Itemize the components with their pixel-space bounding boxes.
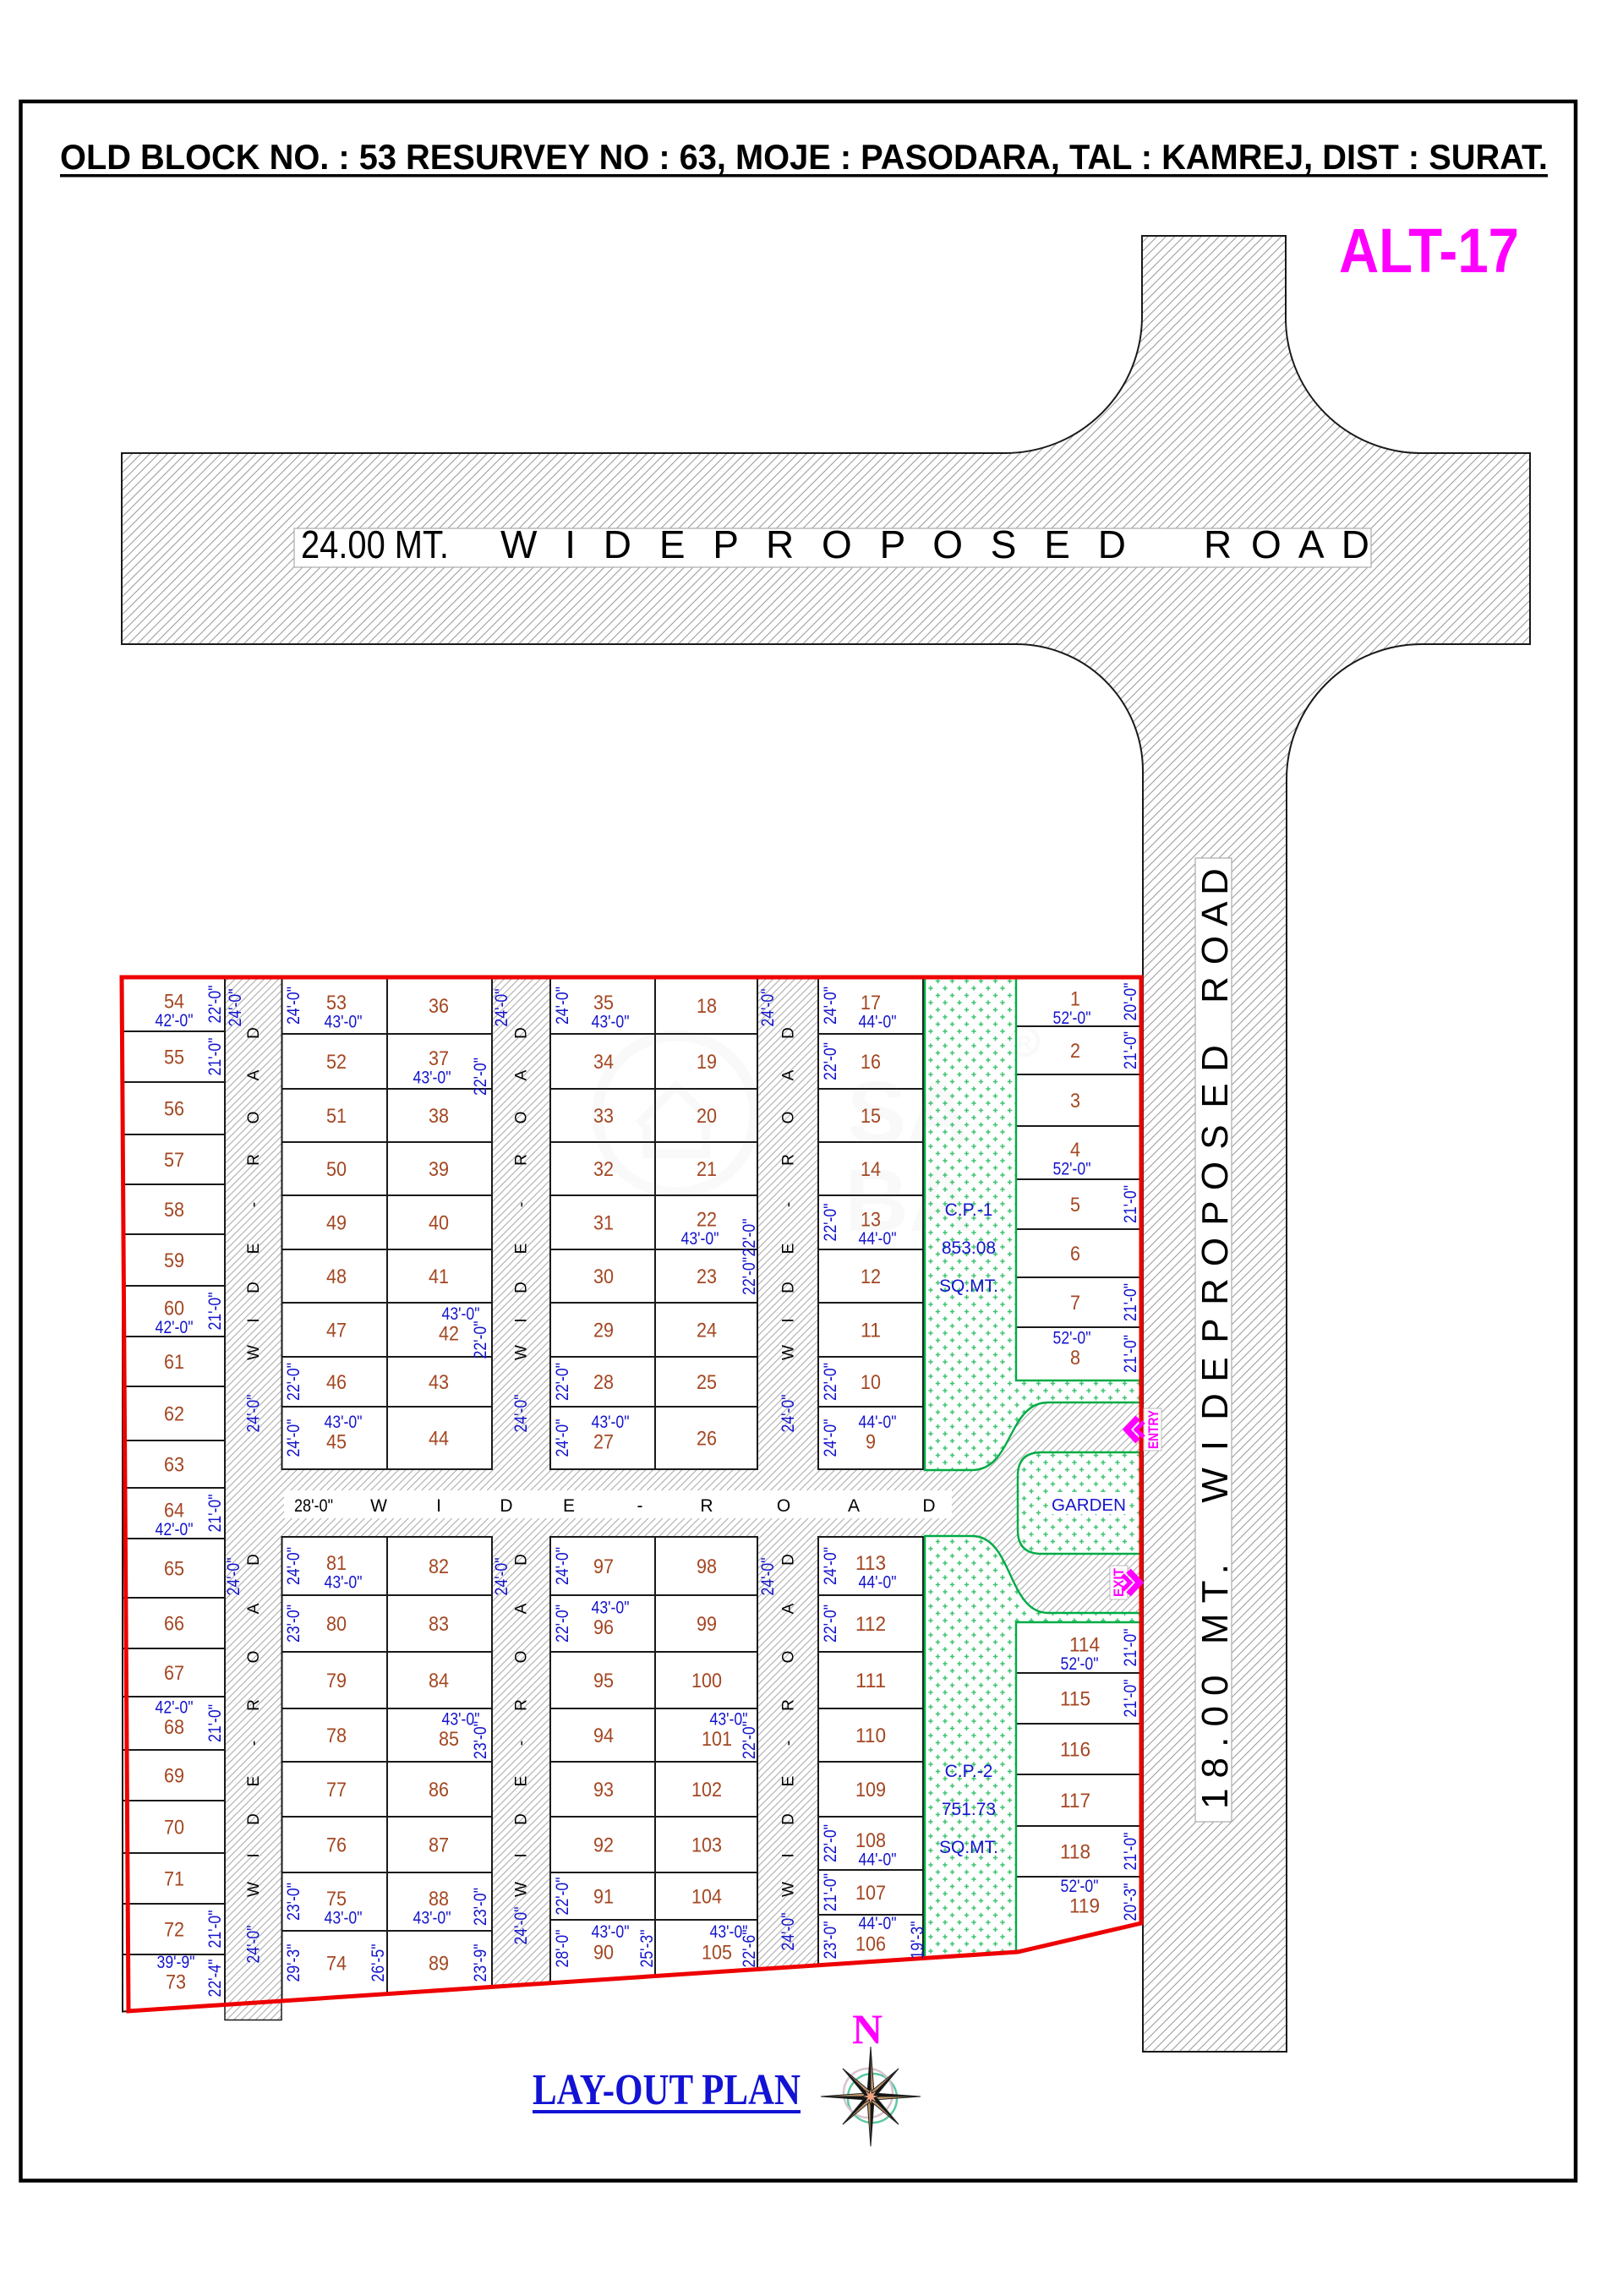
svg-text:53: 53: [326, 992, 347, 1014]
svg-text:72: 72: [164, 1919, 184, 1942]
svg-text:41: 41: [429, 1266, 449, 1288]
svg-text:SQ.MT.: SQ.MT.: [939, 1838, 998, 1857]
svg-text:103: 103: [691, 1834, 722, 1857]
svg-text:D: D: [245, 1282, 263, 1293]
svg-text:A: A: [245, 1069, 263, 1080]
svg-text:66: 66: [164, 1613, 184, 1636]
svg-text:SA: SA: [847, 1063, 970, 1162]
svg-text:24'-0": 24'-0": [553, 1419, 572, 1457]
svg-text:28: 28: [593, 1371, 614, 1394]
svg-text:23'-0": 23'-0": [284, 1883, 303, 1921]
svg-text:W: W: [1194, 1468, 1236, 1503]
svg-text:19'-3": 19'-3": [908, 1922, 927, 1960]
svg-text:22'-0": 22'-0": [553, 1363, 572, 1401]
svg-text:43'-0": 43'-0": [325, 1909, 363, 1928]
svg-text:98: 98: [697, 1555, 717, 1578]
svg-text:O: O: [1194, 1162, 1236, 1190]
svg-text:30: 30: [593, 1266, 614, 1288]
svg-text:R: R: [245, 1699, 263, 1711]
svg-text:82: 82: [429, 1555, 449, 1578]
svg-text:24'-0": 24'-0": [244, 1926, 264, 1964]
svg-text:22'-0": 22'-0": [553, 1878, 572, 1916]
svg-text:113: 113: [855, 1552, 886, 1575]
svg-text:W: W: [245, 1882, 263, 1897]
svg-text:R: R: [1194, 1278, 1236, 1305]
svg-text:D: D: [780, 1813, 798, 1825]
svg-text:76: 76: [326, 1834, 347, 1857]
svg-text:22'-0": 22'-0": [740, 1219, 759, 1257]
svg-text:37: 37: [429, 1047, 449, 1070]
svg-text:52'-0": 52'-0": [1061, 1654, 1099, 1674]
svg-text:115: 115: [1060, 1688, 1090, 1711]
svg-text:43'-0": 43'-0": [325, 1413, 363, 1432]
svg-text:22'-0": 22'-0": [821, 1824, 840, 1862]
svg-text:24.00 MT.: 24.00 MT.: [301, 522, 449, 566]
svg-text:A: A: [780, 1069, 798, 1080]
svg-text:O: O: [513, 1651, 531, 1664]
svg-text:I: I: [1194, 1440, 1236, 1451]
svg-text:21'-0": 21'-0": [821, 1873, 840, 1911]
svg-text:18: 18: [697, 995, 717, 1018]
svg-text:43'-0": 43'-0": [592, 1922, 630, 1942]
svg-text:68: 68: [164, 1716, 184, 1739]
svg-text:D: D: [513, 1027, 531, 1039]
svg-text:29: 29: [593, 1320, 614, 1342]
svg-text:D: D: [1194, 1393, 1236, 1420]
svg-text:-: -: [513, 1741, 531, 1746]
svg-text:39: 39: [429, 1158, 449, 1181]
svg-text:4: 4: [1070, 1139, 1080, 1162]
svg-text:83: 83: [429, 1613, 449, 1636]
svg-text:112: 112: [855, 1613, 886, 1636]
svg-text:75: 75: [326, 1888, 347, 1911]
svg-text:A: A: [1194, 901, 1236, 927]
svg-text:24'-0": 24'-0": [511, 1395, 531, 1433]
svg-text:110: 110: [855, 1725, 886, 1747]
svg-text:63: 63: [164, 1454, 184, 1477]
svg-text:42'-0": 42'-0": [156, 1011, 194, 1030]
svg-text:D: D: [922, 1496, 935, 1516]
svg-text:R: R: [245, 1154, 263, 1166]
svg-text:99: 99: [697, 1613, 717, 1636]
svg-text:117: 117: [1060, 1790, 1090, 1812]
svg-text:22'-0": 22'-0": [205, 986, 225, 1024]
svg-text:I: I: [245, 1853, 263, 1857]
svg-text:39'-9": 39'-9": [157, 1953, 195, 1972]
svg-text:23: 23: [697, 1266, 717, 1288]
svg-text:54: 54: [164, 991, 184, 1014]
svg-text:70: 70: [164, 1817, 184, 1840]
svg-text:44'-0": 44'-0": [859, 1914, 897, 1933]
svg-text:48: 48: [326, 1266, 347, 1288]
svg-text:64: 64: [164, 1500, 184, 1522]
svg-text:35: 35: [593, 992, 614, 1014]
svg-text:24'-0": 24'-0": [553, 987, 572, 1025]
svg-text:24'-0": 24'-0": [758, 1558, 778, 1596]
svg-text:21'-0": 21'-0": [205, 1911, 225, 1949]
svg-text:E: E: [780, 1776, 798, 1787]
svg-text:A: A: [245, 1603, 263, 1614]
svg-text:-: -: [245, 1741, 263, 1746]
svg-text:60: 60: [164, 1298, 184, 1320]
svg-text:96: 96: [593, 1616, 614, 1639]
svg-text:22'-0": 22'-0": [821, 1363, 840, 1401]
svg-text:43'-0": 43'-0": [592, 1413, 630, 1432]
svg-text:GARDEN: GARDEN: [1052, 1496, 1126, 1515]
svg-text:21'-0": 21'-0": [205, 1704, 225, 1742]
svg-text:61: 61: [164, 1351, 184, 1374]
svg-text:R: R: [1194, 976, 1236, 1003]
svg-text:23'-9": 23'-9": [471, 1944, 490, 1982]
svg-text:10: 10: [861, 1371, 881, 1394]
svg-text:C.P.-2: C.P.-2: [945, 1762, 993, 1781]
svg-text:O: O: [1194, 936, 1236, 965]
svg-text:EXIT: EXIT: [1111, 1567, 1127, 1597]
svg-text:65: 65: [164, 1558, 184, 1581]
svg-text:97: 97: [593, 1555, 614, 1578]
svg-text:E: E: [1194, 1357, 1236, 1381]
svg-text:24: 24: [697, 1320, 717, 1342]
svg-text:89: 89: [429, 1953, 449, 1976]
svg-text:21'-0": 21'-0": [1121, 1335, 1140, 1373]
svg-text:A: A: [848, 1496, 860, 1516]
svg-text:22'-0": 22'-0": [740, 1257, 759, 1295]
svg-text:R: R: [700, 1496, 713, 1516]
svg-text:52'-0": 52'-0": [1061, 1877, 1099, 1896]
svg-text:OLD BLOCK NO. : 53 RESURVEY NO: OLD BLOCK NO. : 53 RESURVEY NO : 63, MOJ…: [60, 137, 1548, 177]
svg-text:104: 104: [691, 1886, 722, 1909]
svg-text:67: 67: [164, 1662, 184, 1685]
svg-text:P: P: [1194, 1200, 1236, 1225]
svg-text:107: 107: [855, 1882, 886, 1905]
svg-text:24'-0": 24'-0": [821, 1547, 840, 1585]
svg-text:116: 116: [1060, 1739, 1090, 1762]
svg-text:71: 71: [164, 1868, 184, 1891]
svg-text:1: 1: [1070, 988, 1080, 1011]
svg-text:I: I: [513, 1853, 531, 1857]
svg-text:43'-0": 43'-0": [413, 1909, 451, 1928]
svg-text:24'-0": 24'-0": [821, 1419, 840, 1457]
svg-text:ENTRY: ENTRY: [1145, 1409, 1161, 1449]
svg-text:22'-0": 22'-0": [821, 1042, 840, 1080]
svg-text:45: 45: [326, 1431, 347, 1454]
svg-text:22'-0": 22'-0": [284, 1363, 303, 1401]
svg-text:24'-0": 24'-0": [226, 989, 245, 1027]
svg-text:ALT-17: ALT-17: [1339, 216, 1519, 286]
svg-text:21'-0": 21'-0": [1121, 1031, 1140, 1069]
svg-text:O: O: [513, 1112, 531, 1124]
svg-text:47: 47: [326, 1320, 347, 1342]
svg-text:44'-0": 44'-0": [859, 1850, 897, 1870]
svg-text:5: 5: [1070, 1194, 1080, 1216]
svg-text:43: 43: [429, 1371, 449, 1394]
svg-text:24'-0": 24'-0": [758, 989, 778, 1027]
svg-text:44'-0": 44'-0": [859, 1573, 897, 1593]
svg-text:N: N: [852, 2005, 883, 2053]
svg-text:28'-0": 28'-0": [294, 1496, 333, 1516]
svg-text:106: 106: [855, 1933, 886, 1956]
svg-text:O: O: [245, 1112, 263, 1124]
svg-text:6: 6: [1070, 1243, 1080, 1266]
svg-text:86: 86: [429, 1779, 449, 1801]
svg-text:24'-0": 24'-0": [821, 987, 840, 1025]
svg-text:43'-0": 43'-0": [681, 1229, 719, 1249]
svg-text:E: E: [513, 1776, 531, 1787]
svg-text:79: 79: [326, 1670, 347, 1692]
svg-text:D: D: [245, 1813, 263, 1825]
svg-text:24'-0": 24'-0": [284, 987, 303, 1025]
svg-text:20'-3": 20'-3": [1121, 1883, 1140, 1922]
svg-text:LAY-OUT PLAN: LAY-OUT PLAN: [533, 2066, 801, 2114]
svg-text:92: 92: [593, 1834, 614, 1857]
svg-text:85: 85: [439, 1728, 459, 1751]
svg-text:105: 105: [702, 1942, 732, 1965]
svg-text:93: 93: [593, 1779, 614, 1801]
svg-text:R: R: [780, 1154, 798, 1166]
svg-text:SQ.MT.: SQ.MT.: [939, 1276, 998, 1296]
svg-text:E: E: [245, 1244, 263, 1255]
svg-text:52'-0": 52'-0": [1053, 1160, 1091, 1179]
svg-text:21'-0": 21'-0": [1121, 1283, 1140, 1321]
svg-text:A: A: [513, 1603, 531, 1614]
svg-text:43'-0": 43'-0": [592, 1013, 630, 1032]
svg-text:80: 80: [326, 1613, 347, 1636]
svg-text:42'-0": 42'-0": [156, 1318, 194, 1337]
svg-text:25'-3": 25'-3": [637, 1930, 657, 1968]
svg-text:E: E: [245, 1776, 263, 1787]
svg-text:21'-0": 21'-0": [1121, 1185, 1140, 1223]
svg-text:108: 108: [855, 1829, 886, 1852]
svg-text:81: 81: [326, 1552, 347, 1575]
svg-text:22'-0": 22'-0": [821, 1604, 840, 1643]
svg-text:S: S: [1194, 1124, 1236, 1149]
svg-text:24'-0": 24'-0": [284, 1547, 303, 1585]
svg-text:21'-0": 21'-0": [205, 1293, 225, 1331]
svg-text:D: D: [245, 1554, 263, 1566]
svg-text:88: 88: [429, 1888, 449, 1911]
svg-text:28'-0": 28'-0": [553, 1930, 572, 1968]
svg-text:29'-3": 29'-3": [284, 1944, 303, 1982]
svg-text:26'-5": 26'-5": [369, 1944, 388, 1982]
svg-text:D: D: [513, 1554, 531, 1566]
svg-text:23'-0": 23'-0": [471, 1888, 490, 1926]
svg-text:D: D: [1194, 868, 1236, 895]
svg-text:87: 87: [429, 1834, 449, 1857]
svg-text:22'-0": 22'-0": [471, 1058, 490, 1096]
svg-text:51: 51: [326, 1105, 347, 1128]
svg-text:W: W: [780, 1882, 798, 1897]
svg-text:52'-0": 52'-0": [1053, 1009, 1091, 1028]
svg-text:21'-0": 21'-0": [1121, 1680, 1140, 1718]
svg-text:27: 27: [593, 1431, 614, 1454]
svg-text:58: 58: [164, 1199, 184, 1222]
svg-text:9: 9: [866, 1431, 876, 1454]
svg-text:94: 94: [593, 1725, 614, 1747]
svg-text:42'-0": 42'-0": [156, 1698, 194, 1718]
svg-text:78: 78: [326, 1725, 347, 1747]
svg-text:3: 3: [1070, 1090, 1080, 1112]
svg-text:52: 52: [326, 1051, 347, 1074]
svg-text:24'-0": 24'-0": [244, 1395, 264, 1433]
svg-text:24'-0": 24'-0": [492, 1558, 511, 1596]
svg-text:22'-0": 22'-0": [821, 1204, 840, 1242]
svg-text:109: 109: [855, 1779, 886, 1801]
svg-text:19: 19: [697, 1051, 717, 1074]
svg-text:43'-0": 43'-0": [325, 1573, 363, 1593]
svg-text:46: 46: [326, 1371, 347, 1394]
svg-text:23'-0": 23'-0": [284, 1604, 303, 1643]
svg-text:A: A: [513, 1069, 531, 1080]
svg-text:69: 69: [164, 1765, 184, 1788]
svg-text:I: I: [780, 1853, 798, 1857]
svg-text:111: 111: [855, 1670, 886, 1692]
svg-text:2: 2: [1070, 1040, 1080, 1063]
svg-text:24'-0": 24'-0": [553, 1547, 572, 1585]
svg-text:18.00 MT.: 18.00 MT.: [1194, 1564, 1236, 1809]
svg-text:55: 55: [164, 1047, 184, 1069]
svg-text:E: E: [1194, 1083, 1236, 1107]
svg-text:21'-0": 21'-0": [1121, 1833, 1140, 1871]
svg-text:W: W: [780, 1345, 798, 1360]
svg-text:22'-6": 22'-6": [740, 1930, 759, 1968]
svg-text:84: 84: [429, 1670, 449, 1692]
svg-text:-: -: [780, 1741, 798, 1746]
svg-text:R: R: [513, 1154, 531, 1166]
svg-text:44'-0": 44'-0": [859, 1413, 897, 1432]
svg-text:43'-0": 43'-0": [325, 1013, 363, 1032]
svg-text:751.73: 751.73: [942, 1800, 996, 1819]
svg-text:-: -: [245, 1202, 263, 1207]
svg-text:50: 50: [326, 1158, 347, 1181]
svg-text:E: E: [780, 1244, 798, 1255]
svg-text:E: E: [513, 1244, 531, 1255]
svg-text:E: E: [563, 1496, 575, 1516]
svg-text:D: D: [780, 1554, 798, 1566]
svg-text:R: R: [513, 1699, 531, 1711]
svg-text:22'-0": 22'-0": [471, 1321, 490, 1359]
svg-text:119: 119: [1069, 1895, 1100, 1918]
svg-text:42: 42: [439, 1323, 459, 1346]
svg-text:A: A: [780, 1603, 798, 1614]
svg-text:I: I: [245, 1318, 263, 1322]
svg-text:40: 40: [429, 1212, 449, 1235]
svg-text:O: O: [780, 1112, 798, 1124]
svg-text:8: 8: [1070, 1347, 1080, 1369]
svg-text:101: 101: [702, 1728, 732, 1751]
svg-text:-: -: [513, 1202, 531, 1207]
svg-text:62: 62: [164, 1403, 184, 1426]
svg-text:I: I: [436, 1496, 441, 1516]
svg-text:90: 90: [593, 1942, 614, 1965]
svg-text:49: 49: [326, 1212, 347, 1235]
svg-text:44: 44: [429, 1428, 449, 1451]
svg-text:11: 11: [861, 1320, 881, 1342]
svg-text:57: 57: [164, 1149, 184, 1172]
svg-text:24'-0": 24'-0": [492, 989, 511, 1027]
svg-text:91: 91: [593, 1886, 614, 1909]
svg-text:24'-0": 24'-0": [779, 1395, 798, 1433]
svg-text:36: 36: [429, 995, 449, 1018]
svg-text:I: I: [513, 1318, 531, 1322]
svg-text:O: O: [245, 1651, 263, 1664]
svg-text:20'-0": 20'-0": [1121, 983, 1140, 1021]
svg-text:42'-0": 42'-0": [156, 1520, 194, 1539]
svg-text:-: -: [637, 1496, 643, 1516]
svg-text:P: P: [1194, 1318, 1236, 1342]
svg-text:24'-0": 24'-0": [779, 1913, 798, 1951]
svg-text:22'-0": 22'-0": [553, 1604, 572, 1643]
svg-text:-: -: [780, 1202, 798, 1207]
svg-text:77: 77: [326, 1779, 347, 1801]
svg-text:W: W: [513, 1882, 531, 1897]
svg-text:52'-0": 52'-0": [1053, 1329, 1091, 1348]
svg-text:24'-0": 24'-0": [284, 1419, 303, 1457]
svg-text:31: 31: [593, 1212, 614, 1235]
svg-text:23'-0": 23'-0": [821, 1922, 840, 1960]
svg-text:21'-0": 21'-0": [205, 1495, 225, 1533]
svg-text:I: I: [780, 1318, 798, 1322]
svg-text:21'-0": 21'-0": [205, 1038, 225, 1076]
svg-text:118: 118: [1060, 1841, 1090, 1864]
svg-text:D: D: [780, 1282, 798, 1293]
svg-text:24'-0": 24'-0": [224, 1558, 243, 1596]
svg-text:R O A D: R O A D: [1204, 522, 1369, 566]
svg-text:25: 25: [697, 1371, 717, 1394]
svg-text:O: O: [780, 1651, 798, 1664]
svg-text:O: O: [1194, 1238, 1236, 1266]
svg-text:BA: BA: [844, 1151, 973, 1250]
svg-text:114: 114: [1069, 1634, 1100, 1657]
svg-text:43'-0": 43'-0": [592, 1599, 630, 1618]
svg-text:26: 26: [697, 1428, 717, 1451]
svg-text:D: D: [513, 1282, 531, 1293]
svg-text:74: 74: [326, 1953, 347, 1976]
svg-text:W: W: [513, 1345, 531, 1360]
svg-text:O: O: [777, 1496, 790, 1516]
svg-text:43'-0": 43'-0": [413, 1069, 451, 1088]
svg-text:D: D: [500, 1496, 512, 1516]
svg-text:R: R: [780, 1699, 798, 1711]
svg-text:100: 100: [691, 1670, 722, 1692]
svg-text:22: 22: [697, 1209, 717, 1232]
svg-text:D: D: [245, 1027, 263, 1039]
svg-text:D: D: [780, 1027, 798, 1039]
svg-text:38: 38: [429, 1105, 449, 1128]
svg-text:17: 17: [861, 992, 881, 1014]
svg-text:23'-0": 23'-0": [471, 1721, 490, 1759]
svg-text:102: 102: [691, 1779, 722, 1801]
svg-text:73: 73: [166, 1971, 186, 1994]
svg-text:95: 95: [593, 1670, 614, 1692]
svg-text:D: D: [1194, 1045, 1236, 1072]
svg-text:7: 7: [1070, 1292, 1080, 1315]
svg-text:59: 59: [164, 1249, 184, 1272]
svg-text:W: W: [245, 1345, 263, 1360]
svg-text:D: D: [513, 1813, 531, 1825]
svg-text:W: W: [370, 1496, 387, 1516]
svg-text:21'-0": 21'-0": [1121, 1629, 1140, 1667]
svg-text:56: 56: [164, 1098, 184, 1121]
svg-text:22'-4": 22'-4": [205, 1960, 225, 1998]
svg-text:R: R: [1017, 1032, 1031, 1055]
svg-text:12: 12: [861, 1266, 881, 1288]
svg-text:22'-0": 22'-0": [740, 1721, 759, 1759]
svg-text:24'-0": 24'-0": [511, 1907, 531, 1945]
svg-text:44'-0": 44'-0": [859, 1013, 897, 1032]
